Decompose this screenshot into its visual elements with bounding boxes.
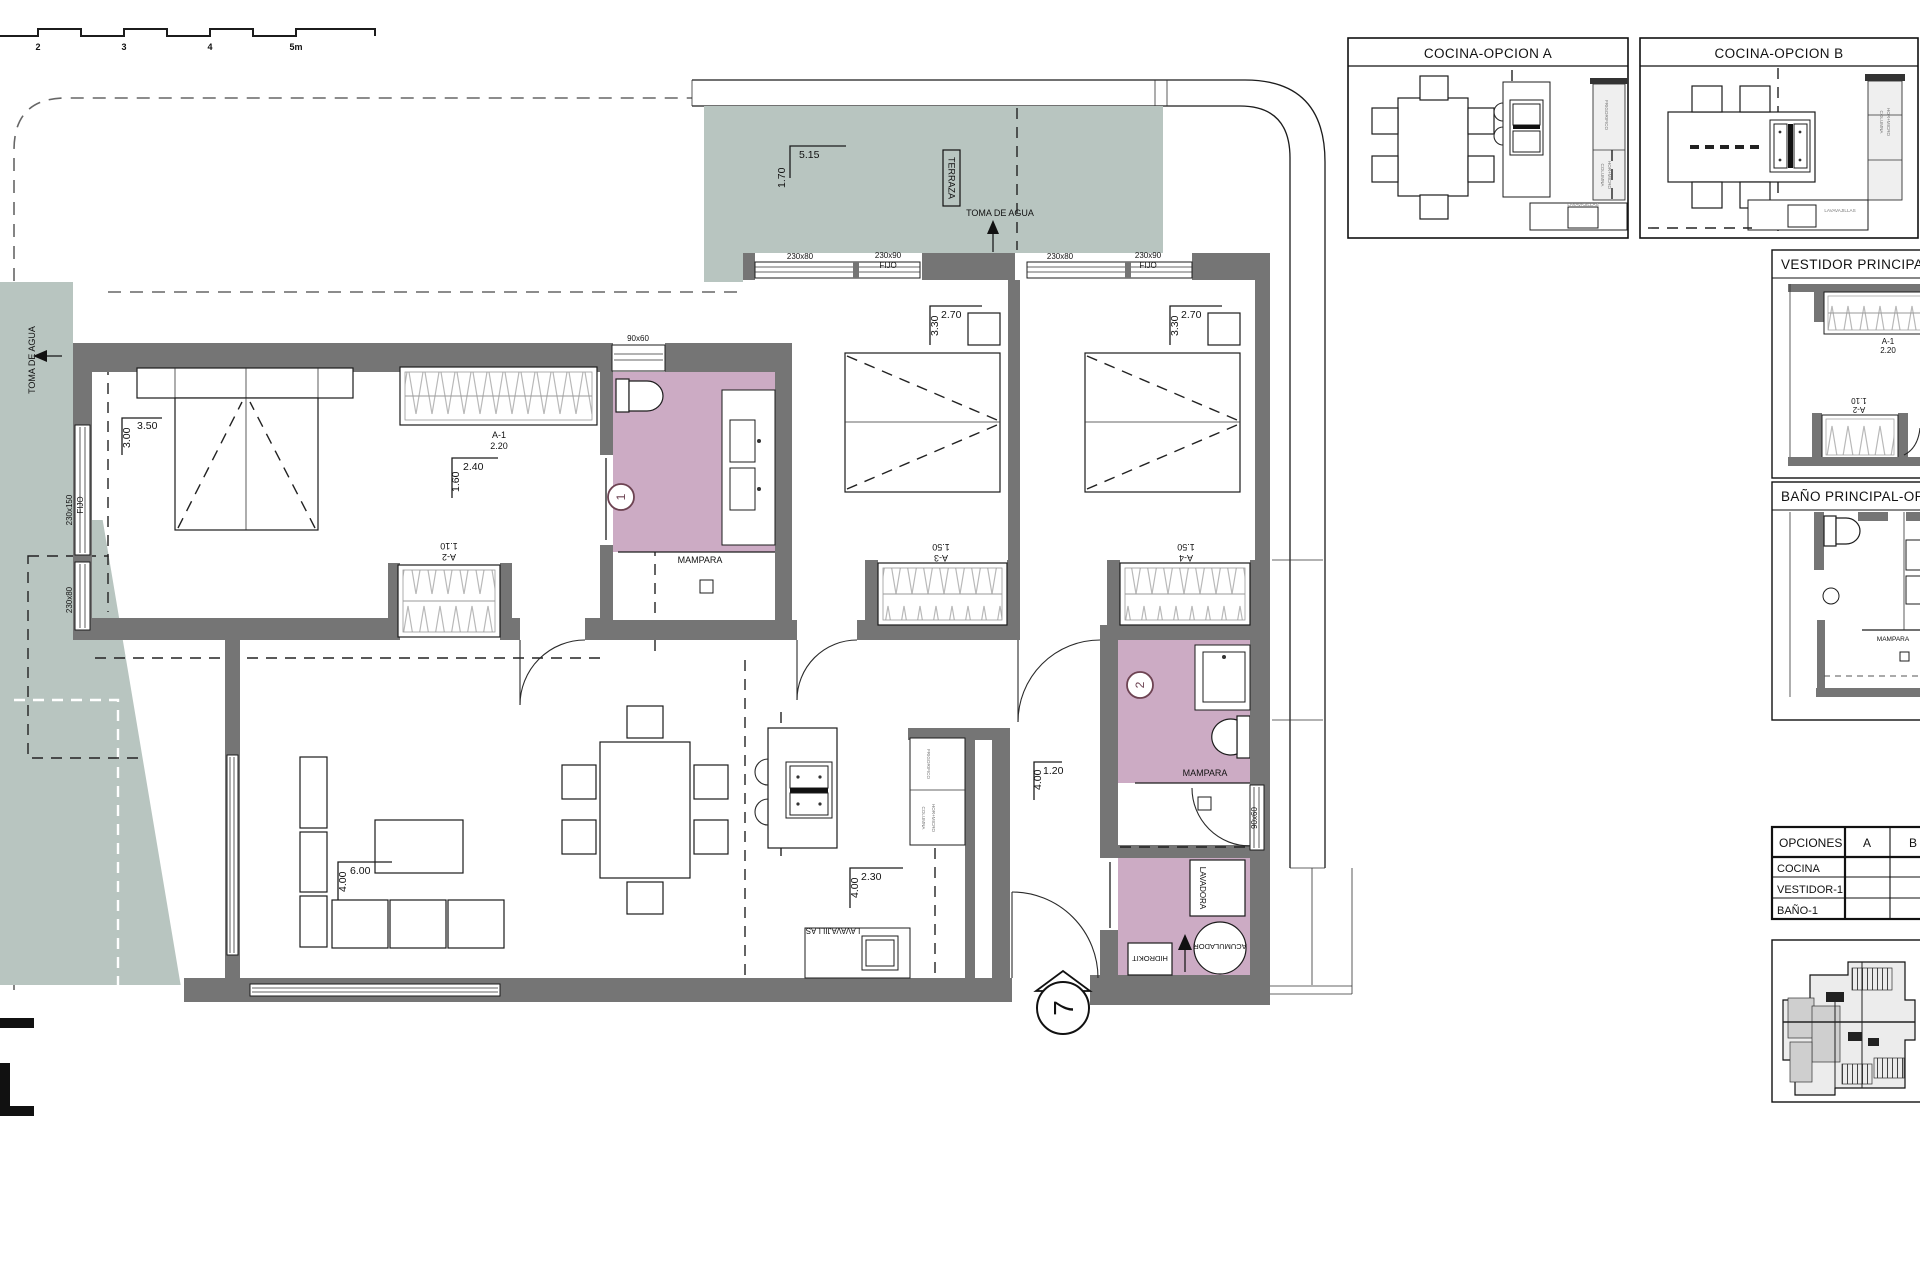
wardrobe-label: A-2 <box>442 552 456 562</box>
option-row-bano: BAÑO-1 <box>1777 904 1818 917</box>
wardrobe-a4-icon <box>1120 563 1250 625</box>
option-marker-1-label: 1 <box>614 493 628 500</box>
shower-drain-icon <box>700 580 713 593</box>
scale-tick-2: 2 <box>35 42 40 52</box>
wardrobe-label: 2.20 <box>1880 346 1896 355</box>
nightstand-icon <box>968 313 1000 345</box>
wardrobe-label: 1.10 <box>440 541 458 551</box>
option-marker-2-label: 2 <box>1133 681 1147 688</box>
columna-label2: HOR+MICRO <box>1886 108 1891 137</box>
lavavajillas-label: LAVAVAJILLAS <box>806 926 861 935</box>
wardrobe-label: A-2 <box>1852 405 1865 414</box>
double-bed-icon <box>845 353 1000 492</box>
wardrobe-a3-icon <box>878 563 1007 625</box>
toma-de-agua-label: TOMA DE AGUA <box>966 208 1034 218</box>
columna-label: COLUMNA <box>1879 111 1884 135</box>
wardrobe-label: 2.20 <box>490 441 508 451</box>
dim-label: 2.70 <box>1181 309 1202 321</box>
window-label: 230x90 <box>1135 251 1162 260</box>
wardrobe-label: A-1 <box>492 430 506 440</box>
double-bed-icon <box>1085 353 1240 492</box>
plan-drawing: 2 3 4 5m <box>0 0 1920 1280</box>
panel-title: BAÑO PRINCIPAL-OPC <box>1781 489 1920 504</box>
washbasin-icon <box>722 390 775 545</box>
scale-tick-5m: 5m <box>289 42 302 52</box>
wardrobe-label: A-1 <box>1882 337 1895 346</box>
dim-label: 4.00 <box>849 877 861 898</box>
option-b-header: B <box>1909 836 1917 850</box>
mirror-icon <box>1823 588 1839 604</box>
window-label: FIJO <box>76 496 85 513</box>
panel-cocina-a: COCINA-OPCION A FRIGORIFICO COLUMNA <box>1348 38 1628 238</box>
options-header: OPCIONES <box>1779 836 1842 850</box>
toilet-icon <box>616 379 663 412</box>
option-row-cocina: COCINA <box>1777 863 1820 875</box>
dim-label: 3.30 <box>1169 315 1181 336</box>
dim-label: 3.00 <box>121 427 133 448</box>
toilet-icon <box>1824 516 1860 546</box>
dim-label: 3.50 <box>137 420 158 432</box>
dim-label: 5.15 <box>799 149 820 161</box>
frigorifico-label: FRIGORIFICO <box>926 749 931 780</box>
window-label: 230x80 <box>65 586 74 613</box>
wardrobe-label: A-3 <box>934 553 948 563</box>
dim-label: 1.20 <box>1043 765 1064 777</box>
dim-label: 2.70 <box>941 309 962 321</box>
double-bed-icon <box>175 398 318 530</box>
option-row-vestidor: VESTIDOR-1 <box>1777 884 1843 896</box>
dim-label: 1.60 <box>450 471 462 492</box>
wardrobe-label: A-4 <box>1179 553 1193 563</box>
columna-label: COLUMNA <box>1600 164 1605 188</box>
columna-label: COLUMNA <box>921 807 926 831</box>
panel-title: COCINA-OPCION B <box>1714 46 1843 61</box>
dim-label: 6.00 <box>350 865 371 877</box>
window-label: 230x80 <box>787 252 814 261</box>
tall-units-icon: COLUMNA HOR+MICRO <box>1865 74 1905 200</box>
window-label: 90x60 <box>1250 807 1259 829</box>
nightstand-icon <box>1208 313 1240 345</box>
wardrobe-label-group: A-2 1.10 <box>440 541 458 562</box>
panel-vestidor: VESTIDOR PRINCIPAL-O A-1 2.20 A-2 1.10 <box>1772 250 1920 478</box>
mampara-label: MAMPARA <box>1877 636 1910 643</box>
wardrobe-a1-icon <box>400 367 597 425</box>
shower-drain-icon <box>1900 652 1909 661</box>
wardrobe-a2-icon <box>398 565 500 637</box>
washbasin-icon <box>1195 645 1250 710</box>
wardrobe-label: 1.10 <box>1851 396 1867 405</box>
wardrobe-label-group: A-4 1.50 <box>1177 542 1195 563</box>
scale-tick-4: 4 <box>207 42 212 52</box>
acumulador-label: ACUMULADOR <box>1193 942 1247 951</box>
window-label: 90x60 <box>627 334 649 343</box>
dim-label: 1.70 <box>776 167 788 188</box>
panel-bano: BAÑO PRINCIPAL-OPC MAMPARA <box>1772 482 1920 720</box>
panel-title: COCINA-OPCION A <box>1424 46 1552 61</box>
shower-drain-icon <box>1198 797 1211 810</box>
unit-number: 7 <box>1048 1000 1079 1016</box>
window-label: 230x80 <box>1047 252 1074 261</box>
scale-tick-3: 3 <box>121 42 126 52</box>
wardrobe-label-group: A-3 1.50 <box>932 542 950 563</box>
tall-units-icon: FRIGORIFICO COLUMNA HOR+MICRO <box>910 738 965 845</box>
window-label: 230x90 <box>875 251 902 260</box>
toma-de-agua-label: TOMA DE AGUA <box>27 326 37 394</box>
wardrobe-label-group: A-2 1.10 <box>1851 396 1867 414</box>
terraza-label: TERRAZA <box>947 157 957 199</box>
wardrobe-label: 1.50 <box>1177 542 1195 552</box>
window-label: FIJO <box>879 261 896 270</box>
panel-title: VESTIDOR PRINCIPAL-O <box>1781 257 1920 272</box>
lavadora-label: LAVADORA <box>1198 867 1207 910</box>
mampara-label: MAMPARA <box>1183 768 1228 778</box>
scale-bar: 2 3 4 5m <box>0 29 375 52</box>
wardrobe-label: 1.50 <box>932 542 950 552</box>
base-counter-icon: LAVAVAJILLAS <box>1530 202 1627 230</box>
floor-plan-sheet: 2 3 4 5m <box>0 0 1920 1280</box>
wardrobe-a2-icon <box>1812 413 1908 463</box>
frigorifico-label: FRIGORIFICO <box>1604 100 1609 131</box>
lavavajillas-label: LAVAVAJILLAS <box>1567 202 1598 207</box>
lavavajillas-label: LAVAVAJILLAS <box>1824 208 1855 213</box>
dim-label: 2.40 <box>463 461 484 473</box>
headboard-cabinets-icon <box>137 368 353 398</box>
wardrobe-a1-icon <box>1824 292 1920 334</box>
base-counter-icon: LAVAVAJILLAS <box>1748 200 1868 230</box>
columna-label2: HOR+MICRO <box>931 804 936 833</box>
window-label: FIJO <box>1139 261 1156 270</box>
dim-label: 2.30 <box>861 871 882 883</box>
option-a-header: A <box>1863 836 1871 850</box>
dim-label: 4.00 <box>337 871 349 892</box>
columna-label2: HOR+MICRO <box>1607 161 1612 190</box>
panel-cocina-b: COCINA-OPCION B COLUMNA HOR+MICRO LAVAVA <box>1640 38 1918 238</box>
options-table: OPCIONES A B COCINA VESTIDOR-1 BAÑO-1 <box>1772 827 1920 919</box>
dim-label: 3.30 <box>929 315 941 336</box>
key-plan <box>1772 940 1920 1102</box>
window-label: 230x150 <box>65 494 74 525</box>
hidrokit-label: HIDROKIT <box>1132 954 1168 963</box>
site-steps <box>0 1018 34 1116</box>
tall-units-icon: FRIGORIFICO COLUMNA HOR+MICRO <box>1590 78 1628 200</box>
mampara-label: MAMPARA <box>678 555 723 565</box>
